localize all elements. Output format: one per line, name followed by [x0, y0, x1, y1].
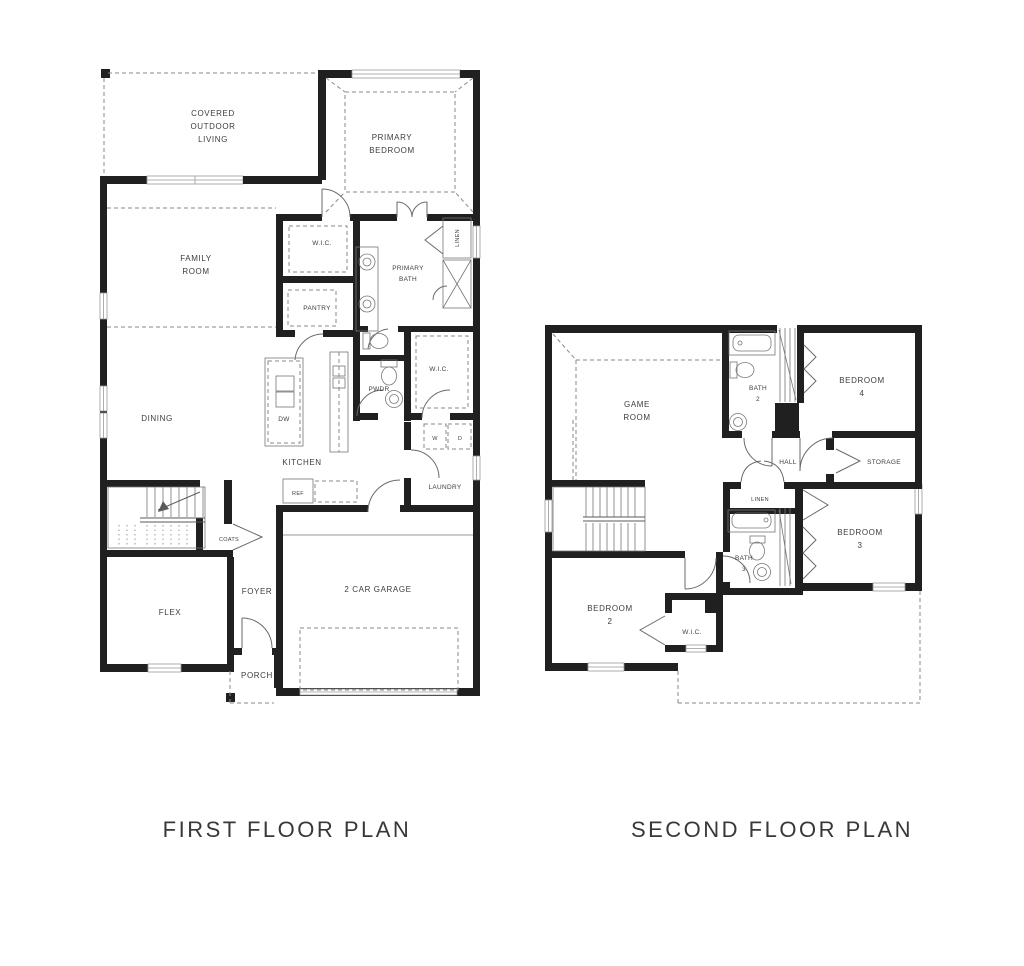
second-floor-title: SECOND FLOOR PLAN [631, 817, 913, 842]
floor-plan-drawing: COVERED OUTDOOR LIVING PRIMARY BEDROOM F… [0, 0, 1024, 966]
bath3-label: BATH [735, 555, 753, 562]
shower-icon [443, 260, 471, 308]
primary-bedroom-label: PRIMARY [372, 133, 413, 142]
plumbing-chase-strips [779, 328, 796, 586]
washer-label: W [432, 436, 438, 442]
flex-label: FLEX [159, 608, 181, 617]
first-floor-staircase [108, 487, 205, 548]
bedroom4-bifold-doors [804, 345, 816, 393]
floor-plan-canvas: COVERED OUTDOOR LIVING PRIMARY BEDROOM F… [0, 0, 1024, 966]
covered-outdoor-living-label: COVERED [191, 109, 235, 118]
bedroom2-label: 2 [607, 617, 612, 626]
family-room-label: FAMILY [180, 254, 212, 263]
dining-label: DINING [141, 414, 173, 423]
linen-label-first: LINEN [455, 229, 461, 247]
dishwasher-label: DW [278, 416, 290, 423]
toilet-icon-primary-wc [363, 333, 388, 349]
kitchen-label: KITCHEN [282, 458, 321, 467]
second-floor-plan: GAME ROOM BATH 2 BEDROOM 4 HALL STORAGE … [545, 325, 922, 703]
storage-label: STORAGE [867, 459, 901, 466]
bedroom3-label: 3 [857, 541, 862, 550]
hall-label: HALL [779, 459, 797, 466]
laundry-label: LAUNDRY [428, 484, 461, 491]
first-floor-plan: COVERED OUTDOOR LIVING PRIMARY BEDROOM F… [100, 69, 480, 703]
dryer-label: D [458, 436, 462, 442]
kitchen-counter [315, 352, 357, 502]
foyer-label: FOYER [242, 587, 273, 596]
pantry-label: PANTRY [303, 305, 331, 312]
bath2-label: 2 [756, 396, 760, 403]
first-floor-outer-walls [100, 70, 480, 696]
toilet-icon-pwdr [381, 360, 403, 408]
toilet-icon-bath2 [730, 362, 754, 378]
pwdr-label: PWDR [368, 386, 389, 393]
game-room-label: ROOM [623, 413, 650, 422]
family-room-label: ROOM [182, 267, 209, 276]
first-floor-title: FIRST FLOOR PLAN [163, 817, 412, 842]
bedroom3-bifold-doors [803, 527, 816, 579]
covered-outdoor-living-label: OUTDOOR [190, 122, 235, 131]
bedroom3-label: BEDROOM [837, 528, 883, 537]
second-floor-staircase [553, 487, 645, 551]
bedroom4-label: 4 [859, 389, 864, 398]
primary-bath-label: PRIMARY [392, 265, 424, 272]
primary-bath-label: BATH [399, 276, 417, 283]
bath3-label: 3 [742, 566, 746, 573]
game-room-label: GAME [624, 400, 650, 409]
bathtub-icon-bath2 [729, 331, 775, 355]
kitchen-island [265, 358, 303, 446]
garage-details [283, 535, 473, 690]
coats-label: COATS [219, 537, 239, 543]
bedroom2-label: BEDROOM [587, 604, 633, 613]
second-floor-interior-walls [545, 325, 922, 652]
bathtub-icon-bath3 [728, 510, 775, 532]
bedroom4-label: BEDROOM [839, 376, 885, 385]
bath2-label: BATH [749, 385, 767, 392]
washer-dryer-boxes [424, 424, 471, 449]
covered-outdoor-living-label: LIVING [198, 135, 228, 144]
wic-primary-label: W.I.C. [312, 240, 332, 247]
refrigerator-label: REF [292, 491, 304, 497]
wic-hall-label: W.I.C. [429, 366, 449, 373]
sink-icon-bath3 [754, 564, 771, 581]
porch-label: PORCH [241, 671, 273, 680]
primary-bedroom-label: BEDROOM [369, 146, 415, 155]
linen-label-second: LINEN [751, 497, 769, 503]
sink-icon-bath2 [730, 414, 747, 431]
wic-label-second: W.I.C. [682, 629, 702, 636]
garage-label: 2 CAR GARAGE [344, 585, 411, 594]
